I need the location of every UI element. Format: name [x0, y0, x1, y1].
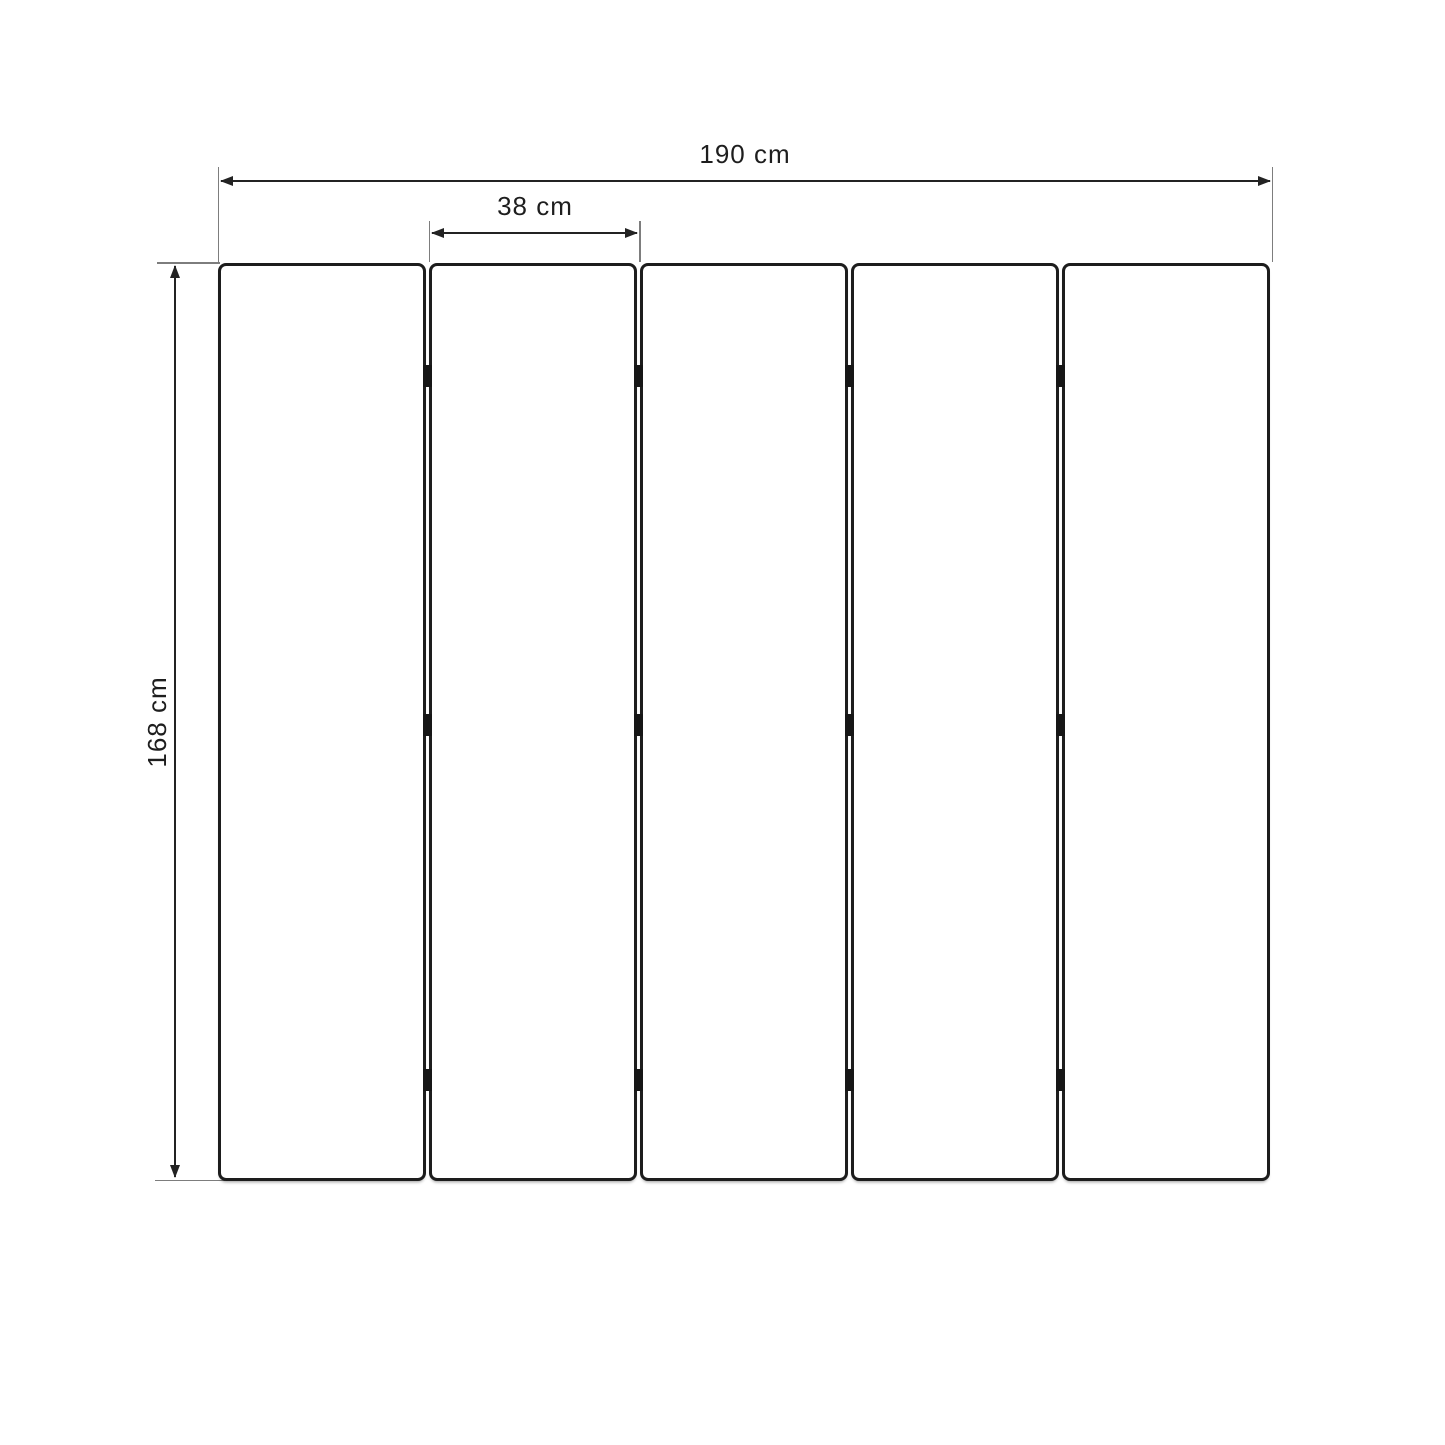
- panel-4: [851, 263, 1059, 1181]
- hinge-connector: [634, 365, 643, 387]
- arrow-down-icon: [170, 1165, 180, 1178]
- height-label: 168 cm: [143, 676, 171, 767]
- panel-width-label: 38 cm: [435, 192, 635, 220]
- hinge-connector: [634, 1069, 643, 1091]
- arrow-left-icon: [220, 176, 233, 186]
- arrow-up-icon: [170, 265, 180, 278]
- panels-row: [218, 263, 1270, 1181]
- arrow-left-icon: [431, 228, 444, 238]
- extension-line-total-left: [218, 167, 220, 262]
- extension-line-total-right: [1272, 167, 1274, 262]
- panel-2: [429, 263, 637, 1181]
- dimension-diagram: 190 cm 38 cm 168 cm: [0, 0, 1445, 1445]
- hinge-connector: [845, 365, 854, 387]
- extension-line-panel-right: [639, 221, 641, 262]
- panel-5: [1062, 263, 1270, 1181]
- total-width-dimension-line: [221, 180, 1270, 182]
- hinge-connector: [423, 365, 432, 387]
- hinge-connector: [845, 714, 854, 736]
- hinge-connector: [423, 714, 432, 736]
- extension-line-height-bottom: [155, 1180, 225, 1182]
- hinge-connector: [1056, 714, 1065, 736]
- arrow-right-icon: [1258, 176, 1271, 186]
- hinge-connector: [845, 1069, 854, 1091]
- hinge-connector: [1056, 365, 1065, 387]
- hinge-connector: [634, 714, 643, 736]
- panel-3: [640, 263, 848, 1181]
- extension-line-panel-left: [429, 221, 431, 262]
- extension-line-height-top: [157, 262, 220, 264]
- hinge-connector: [423, 1069, 432, 1091]
- arrow-right-icon: [625, 228, 638, 238]
- hinge-connector: [1056, 1069, 1065, 1091]
- total-width-label: 190 cm: [645, 140, 845, 168]
- height-dimension-line: [174, 266, 176, 1177]
- panel-width-dimension-line: [432, 232, 637, 234]
- panel-1: [218, 263, 426, 1181]
